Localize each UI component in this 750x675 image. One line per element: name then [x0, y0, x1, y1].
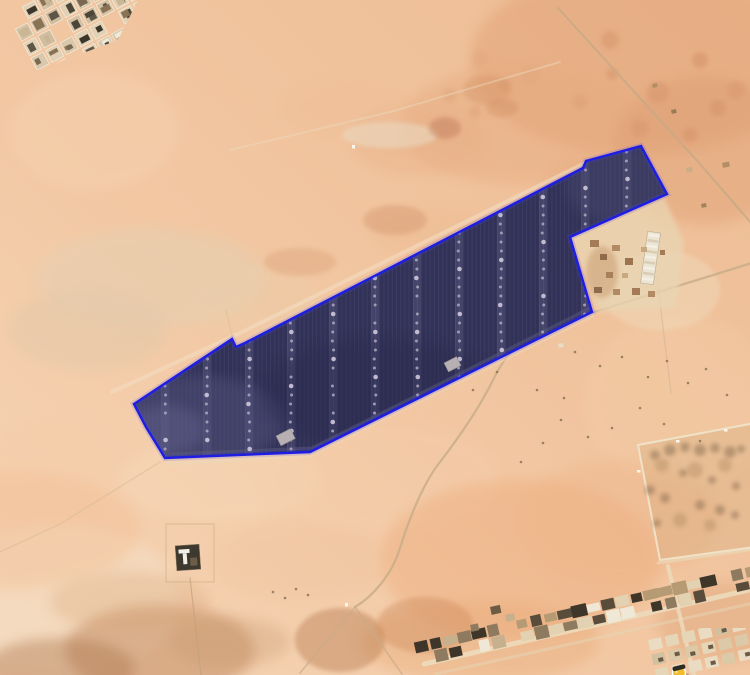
satellite-map-viewport[interactable] — [0, 0, 750, 675]
satellite-imagery — [0, 0, 750, 675]
